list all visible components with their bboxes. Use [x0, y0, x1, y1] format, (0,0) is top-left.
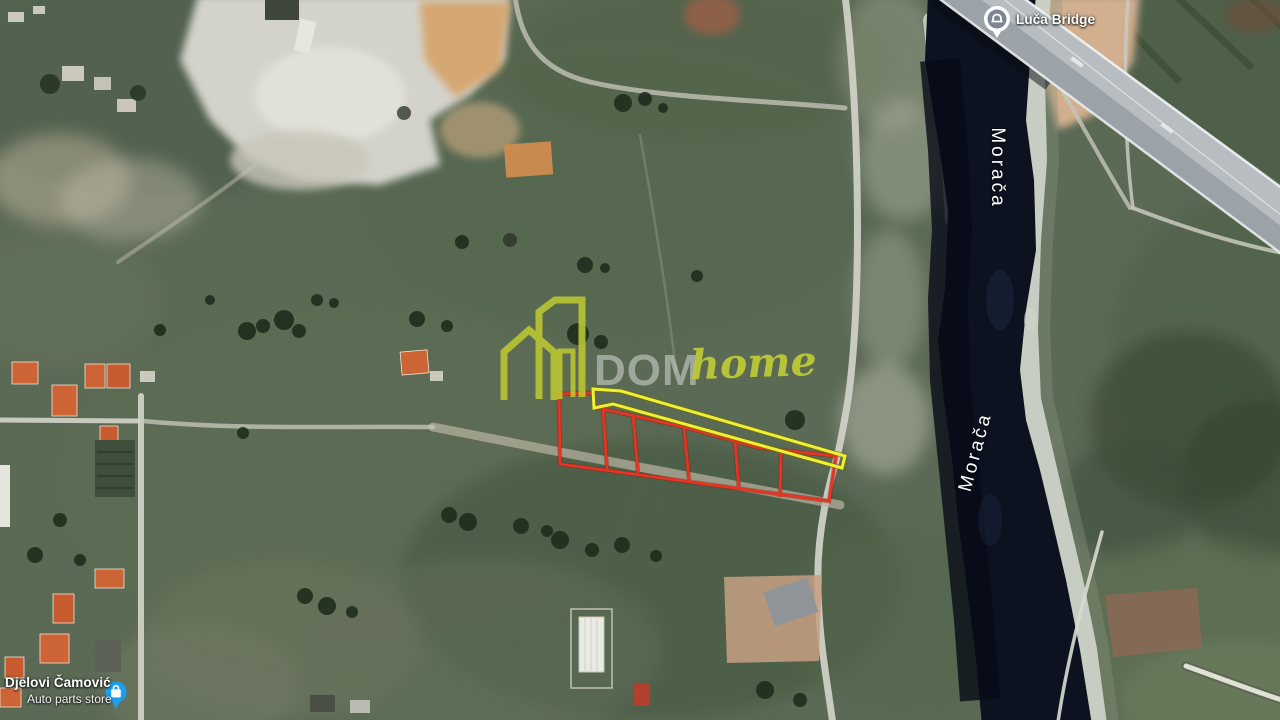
bridge-pin-icon[interactable] — [981, 3, 1015, 41]
river-label-upper: Morača — [986, 127, 1008, 208]
satellite-map-canvas[interactable]: DOM home Luča Bridge Morača Morača Djelo… — [0, 0, 1280, 720]
store-poi-label[interactable]: Djelovi Čamović — [5, 675, 111, 690]
brand-house-icon — [498, 296, 593, 404]
brand-home-text: home — [689, 337, 817, 389]
store-poi-category: Auto parts store — [27, 692, 112, 706]
bridge-poi-label[interactable]: Luča Bridge — [1016, 12, 1095, 27]
brand-dom-text: DOM — [594, 346, 700, 396]
